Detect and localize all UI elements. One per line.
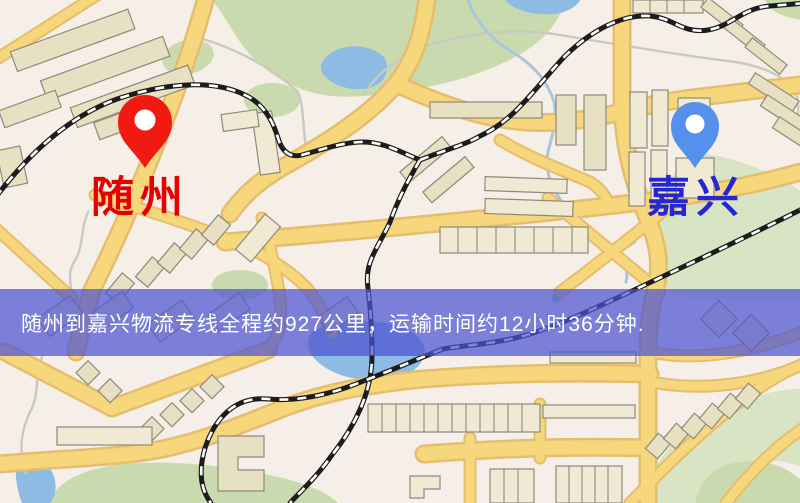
route-banner: 随州到嘉兴物流专线全程约927公里，运输时间约12小时36分钟. <box>0 289 800 356</box>
origin-label: 随州 <box>91 177 189 220</box>
destination-pin-hole <box>686 115 705 134</box>
route-caption: 随州到嘉兴物流专线全程约927公里，运输时间约12小时36分钟. <box>0 308 645 338</box>
origin-pin-hole <box>135 110 156 131</box>
map-image <box>0 0 800 503</box>
map-container: 随州 嘉兴 随州到嘉兴物流专线全程约927公里，运输时间约12小时36分钟. <box>0 0 800 503</box>
destination-label: 嘉兴 <box>647 177 745 220</box>
